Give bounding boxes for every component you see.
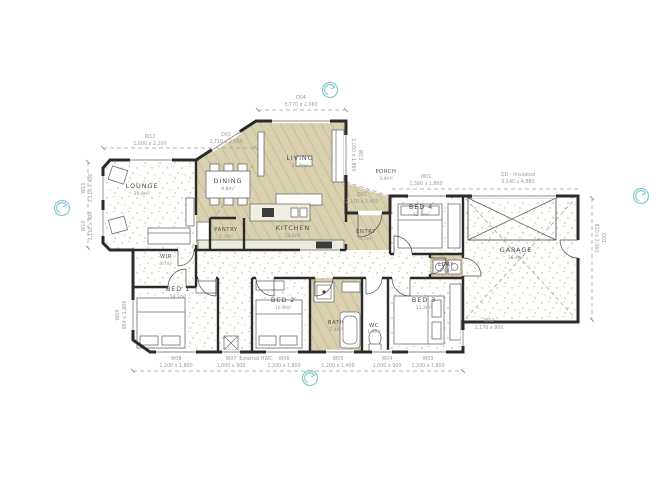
- sofa-icon: [148, 228, 190, 244]
- room-area-bed2: 10.9m²: [275, 305, 292, 311]
- dim-label-w04-code: W04: [382, 356, 393, 362]
- svg-text:2,110 x 400: 2,110 x 400: [88, 174, 94, 203]
- room-area-bed1: 14.2m²: [170, 294, 187, 300]
- svg-text:W09: W09: [115, 310, 121, 321]
- dim-label-w02-code: W02: [484, 318, 495, 324]
- svg-text:D01: D01: [600, 233, 606, 243]
- room-label-wc: WC: [369, 323, 379, 329]
- dim-label-d03-size: 2,710 x 2,060: [209, 139, 242, 145]
- room-label-living: LIVING: [286, 154, 313, 162]
- dim-label-w02-size: 1,170 x 900: [475, 325, 504, 331]
- dim-label-d02-size: 2,170 x 1,400: [345, 199, 378, 205]
- dim-label-w01-code: W01: [421, 174, 432, 180]
- svg-text:1,060 x 1,860: 1,060 x 1,860: [350, 138, 356, 171]
- room-area-dining: 9.8m²: [221, 186, 235, 192]
- dim-label-w08-code: W08: [171, 356, 182, 362]
- room-label-garage: GARAGE: [500, 246, 533, 254]
- room-area-bath: 7.4m²: [329, 327, 343, 333]
- dim-label-w06-size: 1,200 x 1,800: [267, 363, 300, 369]
- compass-watermark-icon: [55, 201, 70, 216]
- shower-icon: [314, 282, 334, 302]
- room-area-pantry: 1.7m²: [219, 234, 233, 240]
- room-area-kitchen: 13.6m²: [285, 233, 302, 239]
- room-label-wir: WIR: [160, 254, 172, 260]
- bathtub-icon: [340, 312, 360, 348]
- room-label-lounge: LOUNGE: [126, 182, 159, 190]
- dim-label-w11: W11 2,110 x 400: [81, 174, 94, 203]
- compass-watermark-icon: [323, 83, 338, 98]
- room-area-bed3: 11.2m²: [416, 305, 433, 311]
- floor-plan-page: LOUNGE 20.8m² DINING 9.8m² LIVING 21.4m²…: [0, 0, 658, 493]
- dim-label-w10: W10 2,110 x 400: [81, 212, 94, 241]
- vanity-icon: [342, 282, 360, 292]
- dim-label-w07-code: W07: [226, 356, 237, 362]
- dim-label-w12-code: W12: [145, 134, 156, 140]
- room-porch-floor: [346, 183, 390, 213]
- svg-text:W13: W13: [357, 150, 363, 161]
- dim-label-d04-code: D04: [296, 95, 306, 101]
- svg-text:954 x 1,800: 954 x 1,800: [122, 301, 128, 330]
- dim-label-gd-code: GD - insulated: [501, 172, 535, 178]
- svg-text:W10: W10: [81, 221, 87, 232]
- room-label-ldry: LDRY: [438, 262, 454, 268]
- dim-label-w09: W09 954 x 1,800: [115, 301, 128, 330]
- dim-label-w13: W13 1,060 x 1,860: [350, 138, 363, 171]
- kitchen-island-icon: [250, 204, 310, 221]
- room-label-bed2: BED 2: [271, 296, 295, 304]
- room-area-porch: 3.4m²: [379, 176, 393, 182]
- compass-watermark-icon: [303, 371, 318, 386]
- compass-watermark-icon: [634, 189, 649, 204]
- room-area-wc: 1.9m²: [367, 329, 381, 335]
- room-label-porch: PORCH: [375, 169, 396, 175]
- floor-plan-canvas: LOUNGE 20.8m² DINING 9.8m² LIVING 21.4m²…: [0, 0, 658, 493]
- room-label-kitchen: KITCHEN: [276, 224, 310, 232]
- dim-label-w01-size: 1,380 x 1,800: [409, 181, 442, 187]
- room-label-entry: ENTRY: [356, 229, 376, 235]
- svg-text:W11: W11: [81, 183, 87, 194]
- dim-label-w07-size: 1,000 x 900: [217, 363, 246, 369]
- room-area-wir: 4.7m²: [159, 261, 173, 267]
- room-label-bed1: BED 1: [166, 285, 190, 293]
- room-area-lounge: 20.8m²: [134, 191, 151, 197]
- dim-label-d03-code: D03: [221, 132, 231, 138]
- dim-label-d02-code: D02: [357, 192, 367, 198]
- room-label-bath: BATH: [328, 320, 344, 326]
- hwc-cupboard-icon: [224, 336, 238, 350]
- room-area-bed4: 12.4m²: [413, 212, 430, 218]
- dim-label-d04-size: 3,770 x 2,060: [284, 102, 317, 108]
- room-area-living: 21.4m²: [292, 163, 309, 169]
- dim-label-w05-code: W05: [333, 356, 344, 362]
- tv-cabinet-icon: [186, 198, 194, 226]
- dim-label-w12-size: 1,000 x 2,200: [133, 141, 166, 147]
- room-label-bed4: BED 4: [409, 203, 433, 211]
- dim-label-gd-size: 5,140 x 4,880: [501, 179, 534, 185]
- room-area-garage: 36.4m²: [508, 255, 525, 261]
- room-label-pantry: PANTRY: [214, 227, 238, 233]
- dim-label-w04-size: 1,000 x 900: [373, 363, 402, 369]
- dim-label-d01: D01 810 x 2,060: [593, 224, 606, 253]
- dim-label-w08-size: 1,200 x 1,800: [159, 363, 192, 369]
- room-area-entry: 4.7m²: [359, 236, 373, 242]
- svg-text:2,110 x 400: 2,110 x 400: [88, 212, 94, 241]
- svg-text:810 x 2,060: 810 x 2,060: [593, 224, 599, 253]
- room-label-bed3: BED 3: [412, 296, 436, 304]
- dim-label-w06-code: W06: [279, 356, 290, 362]
- room-label-dining: DINING: [213, 177, 242, 185]
- dim-label-w05-size: 1,200 x 1,400: [321, 363, 354, 369]
- dim-label-w03-code: W03: [423, 356, 434, 362]
- dim-label-w03-size: 1,200 x 1,800: [411, 363, 444, 369]
- room-area-ldry: 2.9m²: [439, 268, 453, 274]
- note-external-hwc: External HWC: [239, 356, 273, 362]
